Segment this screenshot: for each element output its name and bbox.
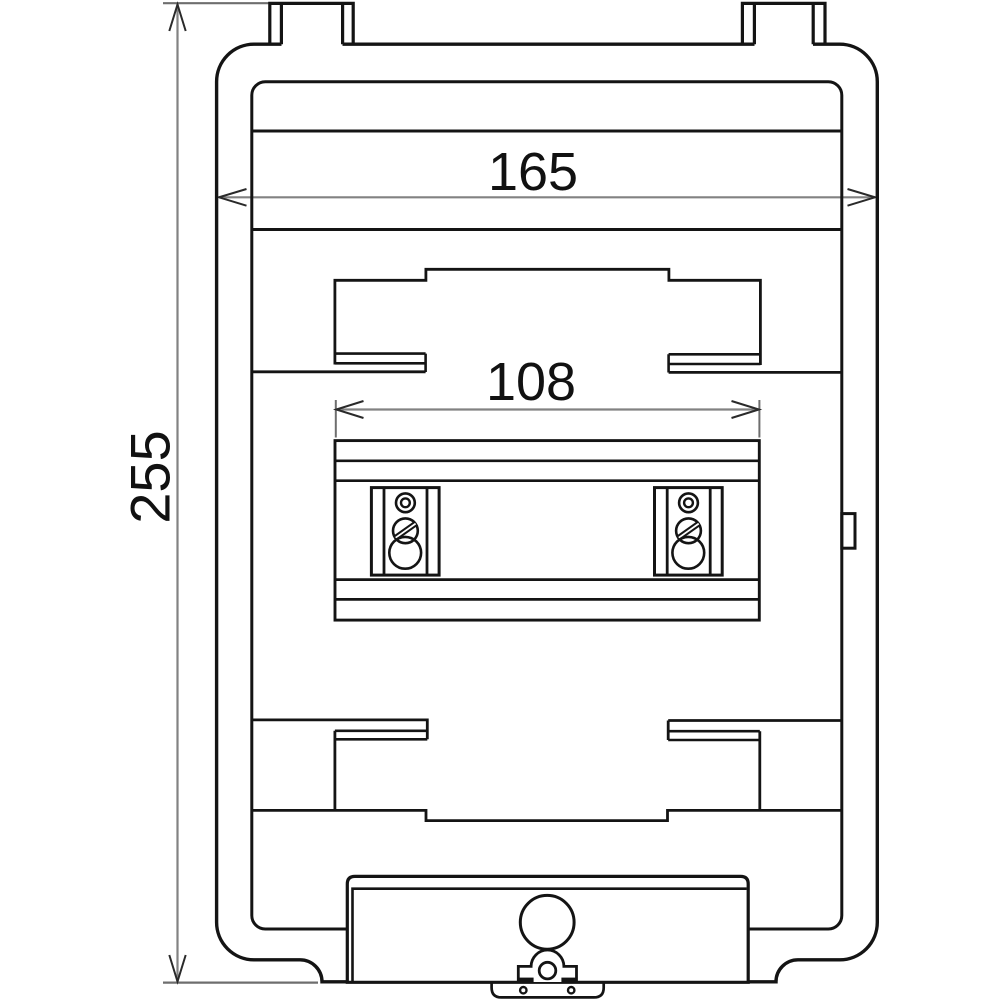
svg-text:108: 108 xyxy=(486,352,576,412)
svg-text:165: 165 xyxy=(488,142,578,202)
svg-text:255: 255 xyxy=(119,430,182,523)
